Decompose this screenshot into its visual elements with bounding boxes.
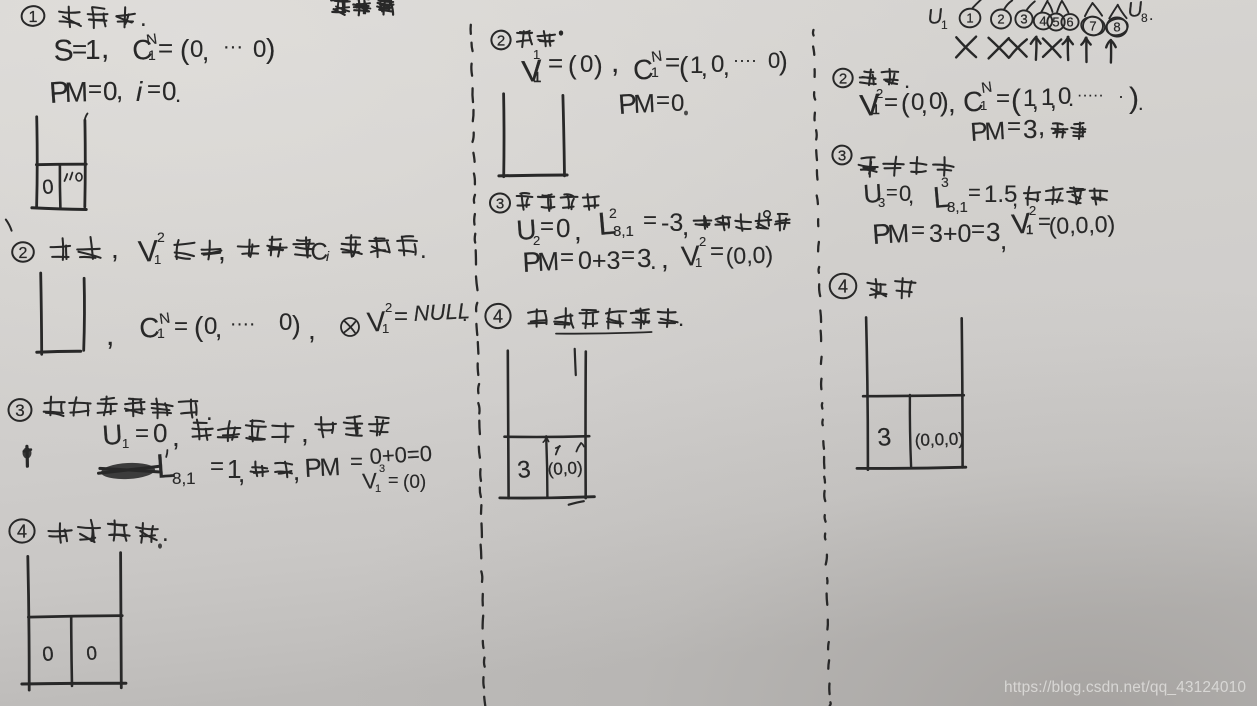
svg-text:8: 8 bbox=[1141, 11, 1148, 25]
svg-text:·: · bbox=[1118, 86, 1124, 106]
svg-text:0+3: 0+3 bbox=[578, 247, 620, 275]
svg-text:3+0: 3+0 bbox=[929, 220, 971, 248]
svg-text:6: 6 bbox=[1066, 15, 1073, 30]
svg-text:,: , bbox=[301, 417, 309, 448]
svg-text:): ) bbox=[779, 46, 788, 76]
svg-text:2: 2 bbox=[157, 229, 165, 245]
svg-text:(: ( bbox=[568, 50, 577, 80]
svg-text:.: . bbox=[175, 82, 181, 107]
svg-text:3: 3 bbox=[838, 147, 846, 164]
svg-text:.: . bbox=[462, 304, 468, 326]
svg-text:1: 1 bbox=[85, 34, 101, 65]
svg-text:): ) bbox=[266, 33, 275, 64]
svg-text:=: = bbox=[710, 238, 724, 265]
svg-text:=: = bbox=[643, 207, 657, 234]
svg-text:1: 1 bbox=[375, 483, 381, 495]
svg-text:,: , bbox=[611, 46, 619, 79]
svg-text:=: = bbox=[971, 216, 985, 243]
svg-text:1: 1 bbox=[148, 47, 156, 63]
svg-text:,: , bbox=[1000, 225, 1007, 255]
svg-text:3: 3 bbox=[516, 456, 532, 484]
svg-text:=: = bbox=[1007, 113, 1021, 140]
svg-text:1: 1 bbox=[382, 321, 389, 336]
svg-text:2: 2 bbox=[876, 86, 883, 101]
svg-text:.: . bbox=[140, 5, 147, 32]
svg-text:4: 4 bbox=[1039, 14, 1046, 29]
svg-text:3: 3 bbox=[379, 463, 385, 475]
svg-text:1: 1 bbox=[941, 18, 948, 32]
svg-text:.: . bbox=[678, 306, 684, 331]
svg-text:=: = bbox=[174, 313, 188, 340]
svg-text:=: = bbox=[147, 76, 161, 103]
svg-text:3: 3 bbox=[941, 174, 949, 190]
svg-text:,: , bbox=[202, 36, 209, 66]
svg-text:=: = bbox=[135, 420, 149, 447]
svg-text:0: 0 bbox=[153, 418, 167, 448]
svg-text:,: , bbox=[218, 235, 226, 266]
svg-text:=: = bbox=[560, 244, 574, 271]
svg-text:0: 0 bbox=[253, 36, 266, 63]
svg-text:=: = bbox=[996, 85, 1010, 112]
svg-text:(: ( bbox=[901, 88, 910, 118]
svg-text:(: ( bbox=[679, 51, 689, 82]
svg-text:4: 4 bbox=[17, 521, 27, 541]
svg-text:2: 2 bbox=[609, 205, 617, 221]
svg-text:M: M bbox=[64, 76, 88, 108]
svg-text:1: 1 bbox=[966, 11, 973, 26]
svg-text:): ) bbox=[594, 50, 603, 80]
svg-text:1: 1 bbox=[122, 436, 129, 451]
svg-text:,: , bbox=[101, 32, 109, 65]
svg-text:4: 4 bbox=[493, 306, 503, 326]
svg-text:.: . bbox=[420, 237, 427, 264]
svg-text:=: = bbox=[88, 76, 102, 103]
svg-text:M: M bbox=[633, 88, 656, 119]
svg-text:2: 2 bbox=[839, 70, 847, 87]
svg-text:,: , bbox=[1050, 87, 1057, 114]
svg-text:=: = bbox=[158, 33, 173, 63]
svg-text:M: M bbox=[984, 117, 1006, 146]
svg-text:8,1: 8,1 bbox=[613, 223, 634, 240]
svg-text:(: ( bbox=[180, 34, 190, 65]
svg-text:,: , bbox=[116, 75, 123, 105]
svg-text:0: 0 bbox=[279, 309, 292, 336]
svg-text:=: = bbox=[388, 470, 399, 490]
svg-text:8,1: 8,1 bbox=[947, 199, 968, 216]
svg-text:1: 1 bbox=[533, 47, 540, 62]
svg-text:2: 2 bbox=[1029, 203, 1036, 218]
svg-text:M: M bbox=[537, 246, 560, 277]
svg-text:,: , bbox=[948, 87, 956, 118]
svg-text:.: . bbox=[650, 248, 657, 275]
svg-text:,: , bbox=[215, 313, 222, 343]
svg-text:=: = bbox=[548, 48, 563, 78]
svg-text:3: 3 bbox=[986, 217, 1000, 247]
svg-text:1: 1 bbox=[1026, 222, 1033, 237]
svg-text:1: 1 bbox=[980, 98, 987, 113]
svg-text:(: ( bbox=[194, 311, 204, 342]
svg-text:···: ··· bbox=[223, 36, 243, 58]
svg-text:.: . bbox=[1149, 7, 1153, 24]
svg-text:2: 2 bbox=[997, 12, 1004, 27]
svg-text:3: 3 bbox=[1023, 114, 1037, 144]
svg-text:8,1: 8,1 bbox=[172, 469, 196, 488]
svg-text:-3: -3 bbox=[661, 209, 683, 237]
svg-text:3: 3 bbox=[496, 195, 504, 212]
svg-text:.: . bbox=[1138, 93, 1144, 115]
svg-text:,: , bbox=[661, 243, 669, 274]
svg-text:3: 3 bbox=[878, 195, 885, 210]
svg-text:=: = bbox=[656, 87, 670, 114]
svg-text:,: , bbox=[921, 92, 928, 119]
svg-text:2: 2 bbox=[699, 234, 706, 249]
svg-text:(0,0): (0,0) bbox=[725, 241, 773, 269]
svg-text:,: , bbox=[293, 456, 300, 486]
svg-text:0: 0 bbox=[671, 90, 684, 117]
svg-text:,: , bbox=[1038, 111, 1045, 141]
svg-text:=: = bbox=[886, 182, 898, 204]
svg-text:2: 2 bbox=[19, 245, 28, 262]
svg-text:=: = bbox=[665, 47, 680, 77]
svg-text:,: , bbox=[308, 314, 316, 345]
svg-text:(0,0,0): (0,0,0) bbox=[914, 429, 964, 450]
svg-text:1: 1 bbox=[695, 255, 702, 270]
svg-text:0: 0 bbox=[86, 643, 98, 665]
svg-text:(0,0): (0,0) bbox=[547, 458, 583, 479]
svg-text:i: i bbox=[136, 76, 143, 107]
svg-text:=: = bbox=[621, 242, 635, 269]
svg-text:1: 1 bbox=[29, 9, 38, 26]
svg-text:8: 8 bbox=[1113, 20, 1120, 35]
svg-text:0: 0 bbox=[580, 51, 593, 78]
svg-text:····: ···· bbox=[230, 314, 255, 335]
svg-text:=: = bbox=[911, 217, 925, 244]
svg-text:1: 1 bbox=[154, 252, 161, 267]
svg-text:3: 3 bbox=[1020, 12, 1027, 27]
svg-text:0: 0 bbox=[556, 213, 570, 243]
svg-text:(0,0,0): (0,0,0) bbox=[1048, 211, 1115, 239]
svg-text:,: , bbox=[1012, 186, 1018, 211]
svg-text:5: 5 bbox=[1052, 15, 1059, 30]
svg-text:0: 0 bbox=[42, 176, 55, 199]
svg-text:.: . bbox=[162, 520, 169, 547]
svg-text:3: 3 bbox=[876, 423, 892, 452]
svg-text:,: , bbox=[908, 183, 914, 208]
svg-text:.: . bbox=[1068, 86, 1074, 111]
svg-text:1: 1 bbox=[651, 64, 659, 80]
svg-text:7: 7 bbox=[1089, 19, 1096, 34]
svg-text:.: . bbox=[206, 399, 213, 426]
svg-text:M: M bbox=[319, 453, 341, 482]
svg-text:U: U bbox=[101, 419, 123, 451]
svg-text:https://blog.csdn.net/qq_43124: https://blog.csdn.net/qq_43124010 bbox=[1004, 679, 1246, 696]
svg-text:1: 1 bbox=[533, 69, 541, 86]
svg-text:2: 2 bbox=[497, 32, 505, 49]
svg-text:1: 1 bbox=[872, 101, 880, 117]
svg-text:,: , bbox=[723, 54, 730, 81]
svg-text:0: 0 bbox=[42, 643, 55, 666]
svg-text:3: 3 bbox=[15, 401, 24, 420]
svg-text:····: ···· bbox=[733, 50, 757, 70]
svg-text:M: M bbox=[887, 218, 910, 249]
svg-text:·····: ····· bbox=[1077, 87, 1104, 104]
svg-text:4: 4 bbox=[838, 276, 848, 296]
svg-text:=: = bbox=[210, 453, 224, 480]
svg-text:(0): (0) bbox=[403, 472, 426, 493]
svg-text:2: 2 bbox=[385, 300, 392, 315]
svg-text:=: = bbox=[884, 89, 898, 116]
svg-text:,: , bbox=[106, 319, 114, 352]
svg-text:=: = bbox=[968, 180, 981, 205]
svg-text:): ) bbox=[292, 310, 301, 340]
svg-text:,: , bbox=[682, 211, 689, 241]
svg-text:,: , bbox=[238, 458, 245, 488]
svg-text:=: = bbox=[394, 303, 408, 330]
svg-text:,: , bbox=[574, 215, 582, 246]
svg-text:,: , bbox=[111, 233, 119, 264]
svg-text:=: = bbox=[540, 213, 554, 240]
svg-text:,: , bbox=[701, 55, 708, 82]
